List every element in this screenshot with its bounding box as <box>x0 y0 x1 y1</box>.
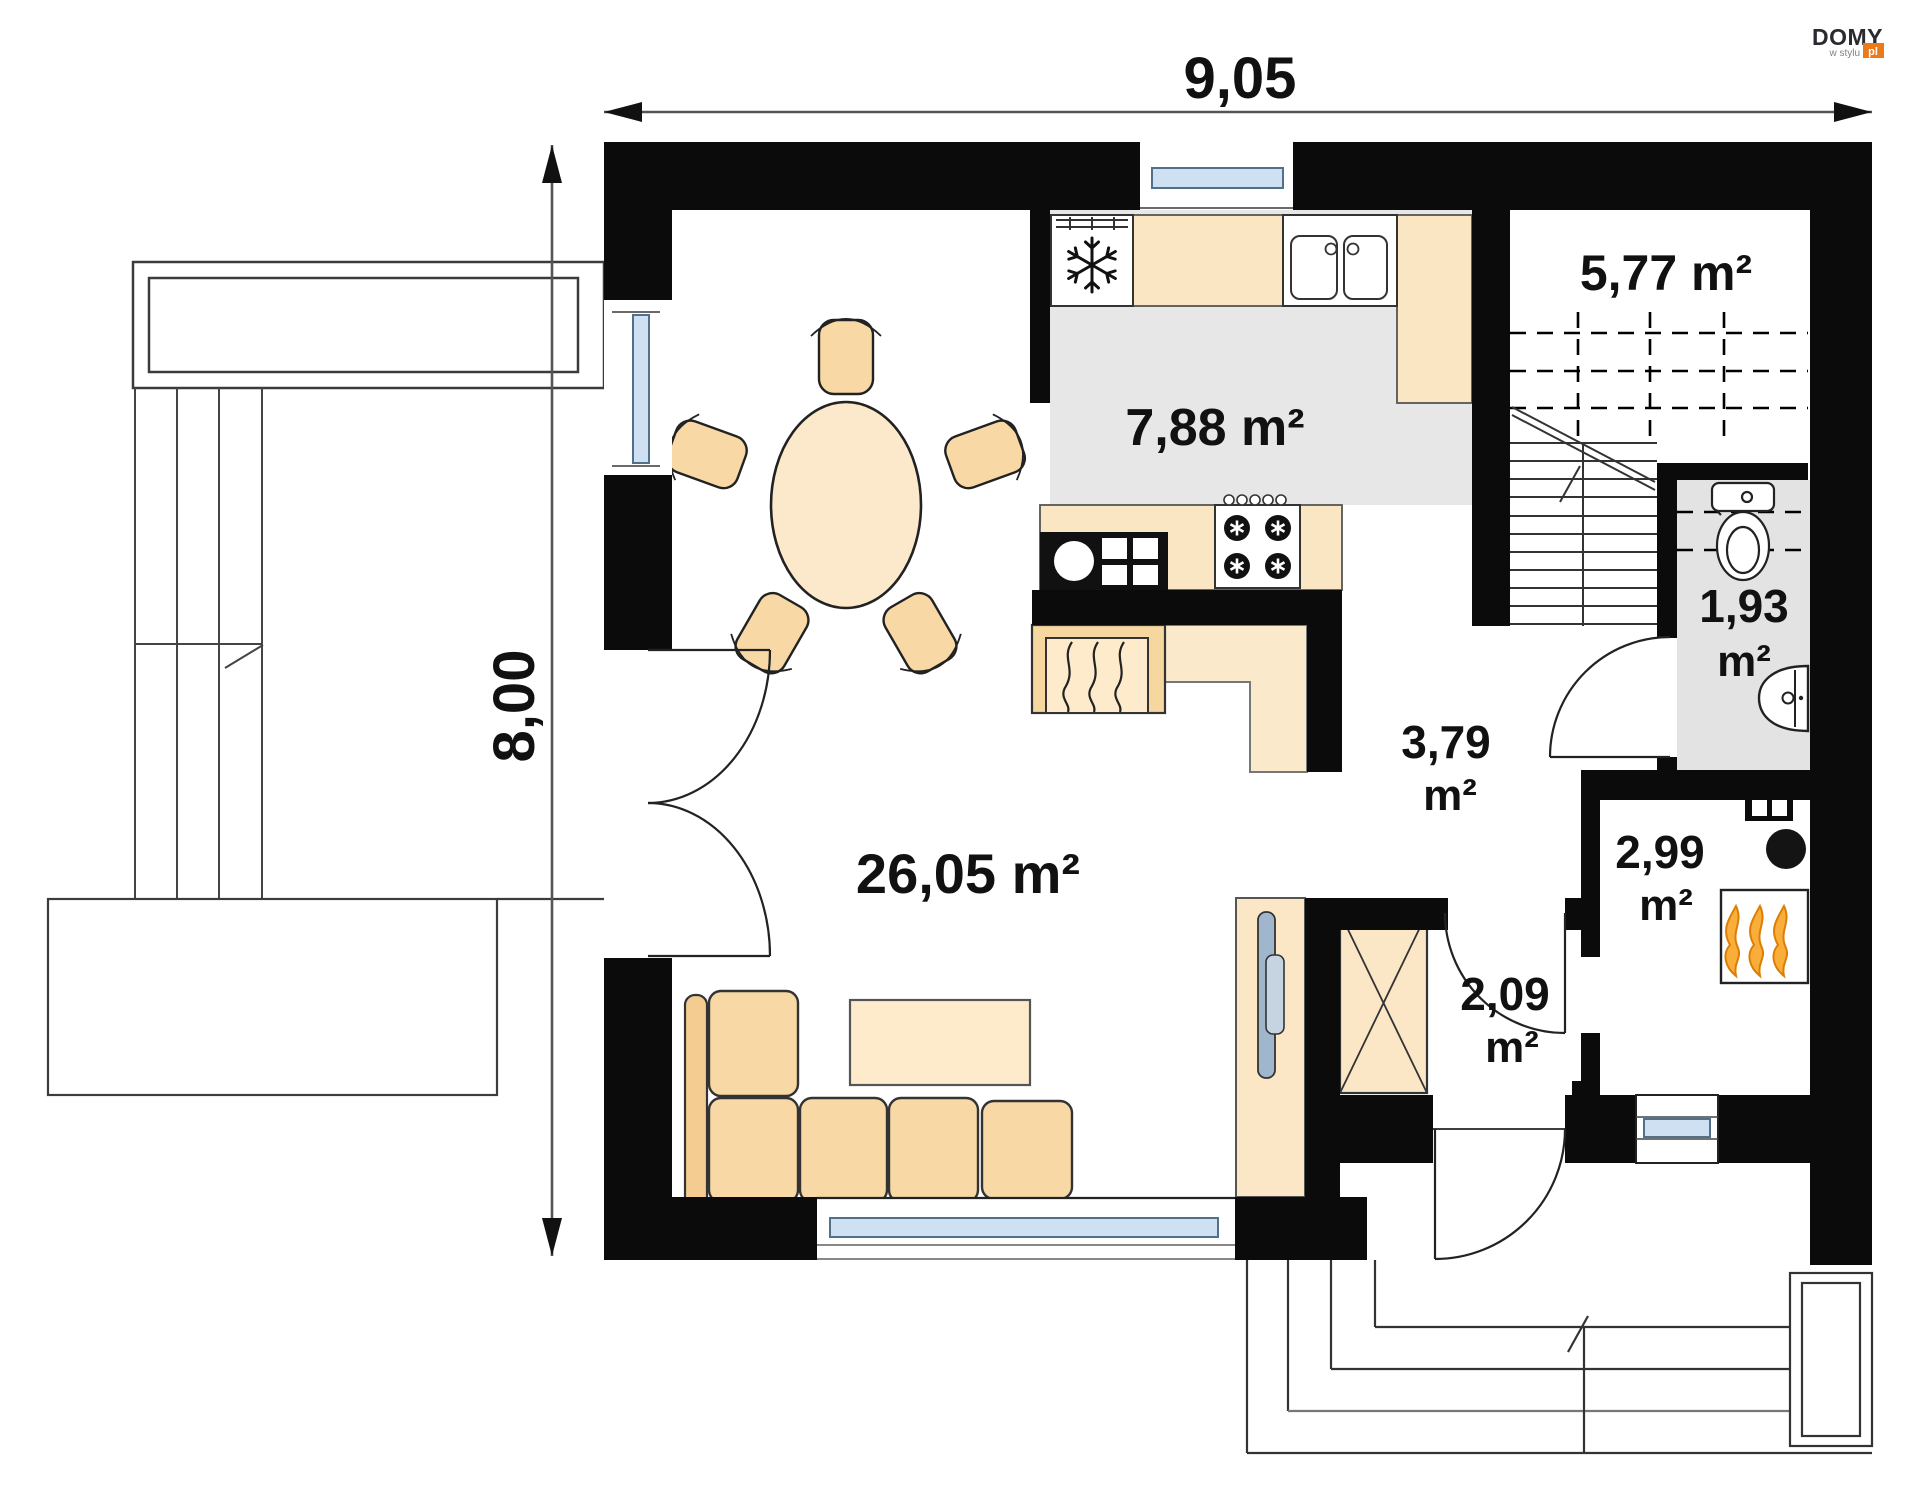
wall-left-a <box>604 210 672 300</box>
svg-text:m²: m² <box>1485 1023 1539 1072</box>
wall-bottom-mid <box>1235 1197 1367 1260</box>
kitchen-counter-top <box>1133 215 1283 306</box>
logo-tagline: w stylu <box>1828 48 1860 59</box>
logo: DOMY w stylu pl <box>1812 24 1884 59</box>
svg-text:3,79: 3,79 <box>1401 716 1491 768</box>
wall-bottom-left <box>604 1197 817 1260</box>
dimension-height: 8,00 <box>482 145 562 1256</box>
door-entry <box>1433 1129 1565 1259</box>
wall-wc-left <box>1657 480 1677 638</box>
terrace <box>133 262 604 388</box>
entry-porch <box>1247 1260 1872 1453</box>
burner-icon <box>1224 553 1250 579</box>
boiler <box>1721 890 1808 983</box>
logo-suffix: pl <box>1868 46 1878 58</box>
arrow-right-icon <box>1834 102 1872 122</box>
gas-stove <box>1215 495 1300 588</box>
water-heater <box>1766 829 1806 869</box>
label-staircase-area: 5,77 m² <box>1580 245 1752 301</box>
dining-set <box>659 319 1033 684</box>
svg-text:2,99: 2,99 <box>1615 826 1705 878</box>
french-door-terrace <box>648 650 770 956</box>
floor-plan-drawing: 9,05 8,00 <box>0 0 1920 1502</box>
kitchen-sink <box>1283 215 1397 306</box>
label-hall-area: 3,79 m² <box>1401 716 1491 820</box>
window-entry <box>1636 1095 1718 1163</box>
wall-wc-bottom <box>1581 770 1810 800</box>
label-kitchen-area: 7,88 m² <box>1125 399 1304 457</box>
terrace-outline <box>133 262 604 388</box>
height-dimension-label: 8,00 <box>482 650 547 763</box>
wall-staircase-left <box>1472 210 1510 626</box>
svg-text:2,09: 2,09 <box>1460 968 1550 1020</box>
oven-unit <box>1040 532 1168 590</box>
arrow-up-icon <box>542 145 562 183</box>
wall-top-right <box>1293 142 1872 210</box>
door-wc <box>1550 637 1670 757</box>
terrace-inner-outline <box>149 278 578 372</box>
window-living-bottom <box>817 1197 1235 1260</box>
burner-icon <box>1265 553 1291 579</box>
wall-kitchen-dining <box>1030 210 1050 403</box>
garden-slab <box>48 899 604 1095</box>
step-direction-tick <box>225 645 263 668</box>
wall-utility-left <box>1581 800 1600 957</box>
wall-right <box>1810 210 1872 1265</box>
width-dimension-label: 9,05 <box>1184 46 1297 111</box>
wall-left-b <box>604 475 672 650</box>
wall-living-vestibule <box>1305 930 1340 1197</box>
stairs-upper-flight-dashed <box>1510 312 1808 441</box>
coffee-table <box>850 1000 1030 1085</box>
wall-vestibule-top-right <box>1565 898 1600 930</box>
svg-text:m²: m² <box>1423 771 1477 820</box>
toilet <box>1712 483 1774 580</box>
floor-plan-page: 9,05 8,00 <box>0 0 1920 1502</box>
dimension-width: 9,05 <box>604 46 1872 122</box>
stove-coil-icon <box>1224 495 1286 505</box>
label-living-area: 26,05 m² <box>856 842 1080 905</box>
arrow-down-icon <box>542 1218 562 1256</box>
svg-text:m²: m² <box>1639 881 1693 930</box>
label-utility-area: 2,99 m² <box>1615 826 1705 930</box>
wall-vestibule-top-left <box>1305 898 1448 930</box>
dining-table <box>771 402 921 608</box>
wall-entry-left <box>1340 1095 1433 1163</box>
wall-kitchen-bottom <box>1032 590 1342 625</box>
label-vestibule-area: 2,09 m² <box>1460 968 1550 1072</box>
wall-entry-right <box>1718 1095 1810 1163</box>
wall-entry-mid <box>1565 1095 1636 1163</box>
wardrobe <box>1340 913 1427 1093</box>
fireplace <box>1032 625 1307 772</box>
faucet-icon <box>1326 244 1337 255</box>
wall-left-c <box>604 958 672 1197</box>
burner-icon <box>1224 515 1250 541</box>
arrow-left-icon <box>604 102 642 122</box>
tv-cabinet <box>1236 898 1305 1197</box>
wall-fireplace-column <box>1307 625 1342 772</box>
svg-text:1,93: 1,93 <box>1699 580 1789 632</box>
flame-icon <box>1725 906 1787 976</box>
wall-wc-left-stub <box>1657 757 1677 770</box>
wall-top-left <box>604 142 1140 210</box>
utility-fixtures <box>1721 795 1808 983</box>
svg-text:m²: m² <box>1717 637 1771 686</box>
window-left <box>604 300 672 475</box>
burner-icon <box>1265 515 1291 541</box>
fireplace-bench <box>1165 625 1307 772</box>
wall-stair-wc <box>1657 463 1808 480</box>
wall-nub <box>1572 1081 1600 1095</box>
faucet-icon <box>1348 244 1359 255</box>
kitchen-counter-right <box>1397 215 1472 403</box>
window-kitchen-top <box>1140 142 1293 210</box>
terrace-side-steps <box>135 388 263 899</box>
